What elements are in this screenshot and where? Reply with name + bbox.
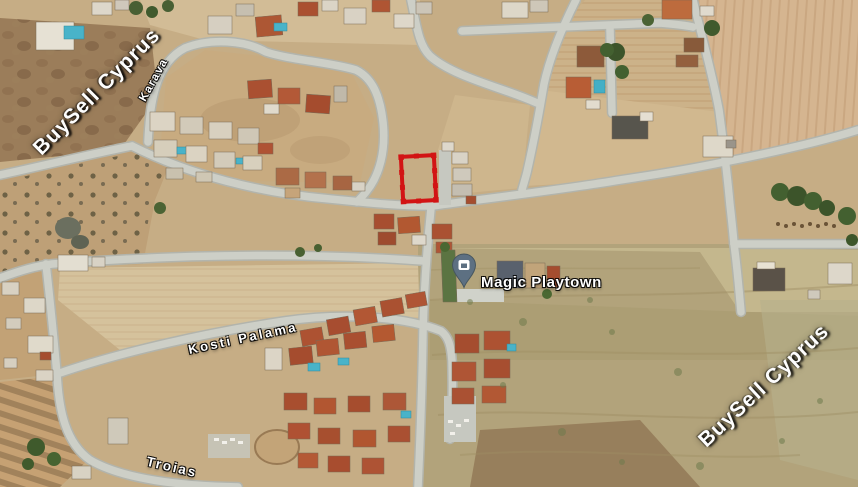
place-label[interactable]: Magic Playtown [481,274,602,291]
place-pin-icon[interactable] [451,253,477,291]
map-canvas[interactable]: Karava Kosti Palama Troias Magic Playtow… [0,0,858,487]
satellite-imagery [0,0,858,487]
place-marker-magic-playtown[interactable]: Magic Playtown [451,253,602,291]
